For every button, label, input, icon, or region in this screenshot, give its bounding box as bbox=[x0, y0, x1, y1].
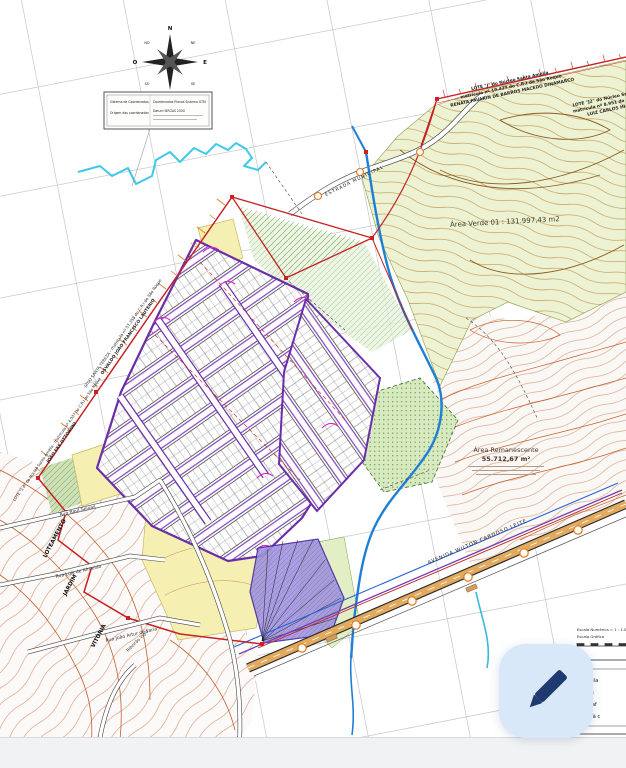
svg-text:55.712,67 m²: 55.712,67 m² bbox=[482, 455, 531, 463]
info-row1-label: Sistema de Coordenadas bbox=[110, 100, 149, 104]
compass-se: SE bbox=[191, 82, 195, 86]
svg-text:Escala Numérica = 1 : 1.000: Escala Numérica = 1 : 1.000 bbox=[577, 627, 626, 632]
footer-bar bbox=[0, 737, 626, 768]
pencil-icon bbox=[499, 644, 593, 738]
info-row1-value: Coordenadas Planas Sistema UTM bbox=[153, 100, 206, 104]
info-row2-value: Datum SIRGAS 2000 bbox=[153, 109, 185, 113]
compass-ne: NE bbox=[191, 41, 196, 45]
plan-viewer: N S E O NE SE SO NO Sistema de Coordenad… bbox=[0, 0, 626, 768]
compass-no: NO bbox=[144, 41, 150, 45]
svg-text:Área Remanescente: Área Remanescente bbox=[473, 445, 538, 454]
compass-e: E bbox=[203, 60, 207, 66]
compass-o: O bbox=[133, 60, 138, 66]
compass-so: SO bbox=[145, 82, 150, 86]
compass-n: N bbox=[168, 26, 173, 32]
info-row2-label: Origem das coordenadas bbox=[110, 111, 149, 115]
edit-button[interactable] bbox=[499, 644, 593, 738]
svg-text:Escala Gráfica: Escala Gráfica bbox=[577, 634, 604, 639]
